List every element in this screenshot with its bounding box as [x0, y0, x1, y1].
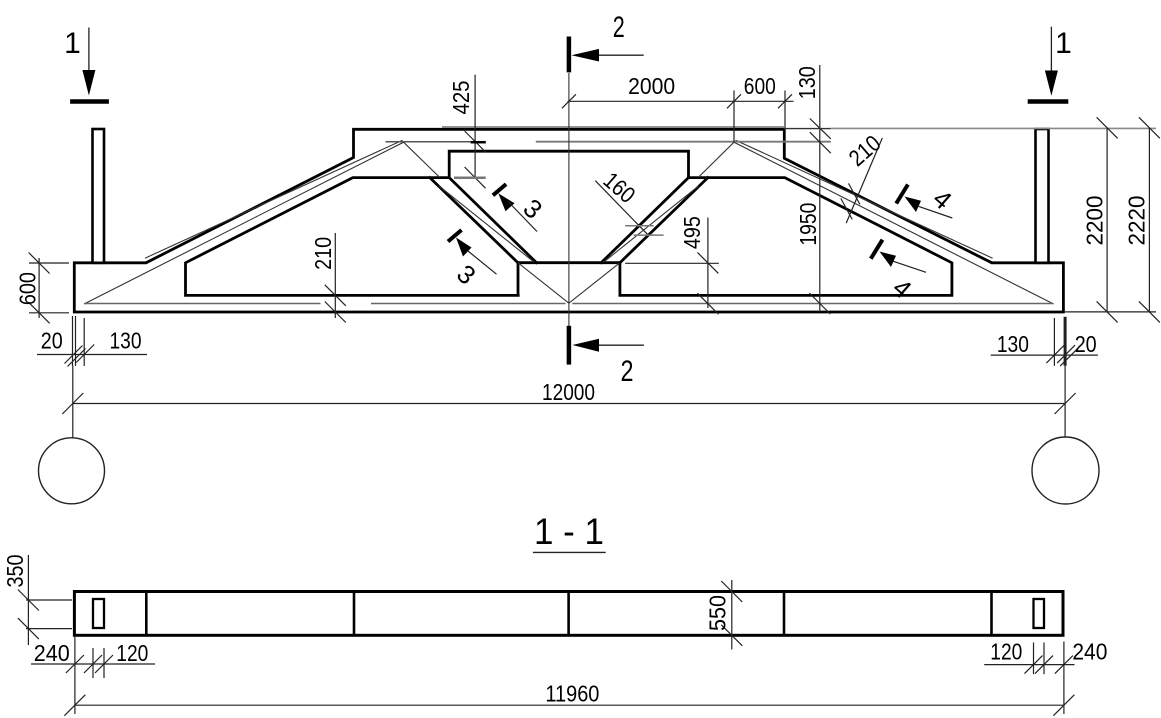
- svg-text:210: 210: [310, 237, 336, 270]
- svg-text:240: 240: [1072, 639, 1107, 665]
- svg-text:2: 2: [613, 11, 625, 44]
- svg-text:12000: 12000: [542, 379, 595, 405]
- svg-text:130: 130: [794, 66, 820, 99]
- svg-text:495: 495: [679, 216, 705, 249]
- svg-text:2220: 2220: [1124, 196, 1150, 246]
- svg-text:600: 600: [744, 73, 776, 99]
- svg-text:1 - 1: 1 - 1: [534, 511, 604, 552]
- svg-text:600: 600: [15, 272, 41, 305]
- svg-text:550: 550: [704, 595, 730, 631]
- svg-text:240: 240: [34, 640, 70, 666]
- svg-text:1: 1: [1055, 27, 1072, 60]
- svg-text:350: 350: [2, 555, 28, 588]
- svg-text:425: 425: [448, 81, 474, 115]
- svg-text:1950: 1950: [795, 203, 821, 246]
- svg-text:2200: 2200: [1081, 196, 1107, 246]
- svg-text:2: 2: [621, 355, 634, 388]
- svg-text:2000: 2000: [628, 73, 675, 99]
- svg-text:20: 20: [41, 328, 63, 354]
- svg-text:1: 1: [64, 27, 81, 60]
- svg-text:20: 20: [1075, 331, 1097, 357]
- svg-text:130: 130: [110, 328, 142, 354]
- svg-text:130: 130: [997, 331, 1029, 357]
- svg-text:11960: 11960: [545, 681, 599, 707]
- svg-text:120: 120: [116, 640, 148, 666]
- svg-text:120: 120: [990, 639, 1022, 665]
